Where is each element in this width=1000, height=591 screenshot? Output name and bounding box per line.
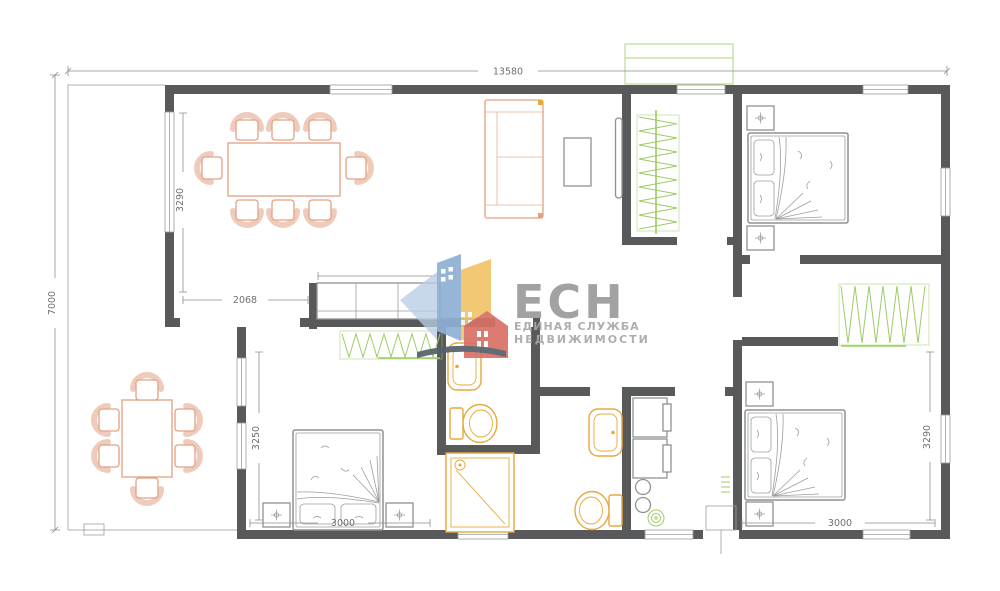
terrace-chair xyxy=(94,406,119,434)
entry-door xyxy=(706,506,736,554)
window xyxy=(941,415,950,463)
terrace-table xyxy=(122,400,172,477)
dining-chair xyxy=(233,115,261,140)
dim-bedroom-left-width: 3000 xyxy=(331,518,355,529)
terrace-set xyxy=(94,375,200,503)
bathroom-right xyxy=(575,409,622,530)
dim-dining-opening: 2068 xyxy=(233,295,257,306)
nightstand xyxy=(746,382,773,406)
bedroom-top-right xyxy=(747,106,848,250)
floor-plan-page: 13580 7000 3290 2068 3250 3000 3290 3000 xyxy=(0,0,1000,591)
window xyxy=(645,530,693,539)
toilet-icon xyxy=(575,492,622,530)
living-room-furniture xyxy=(485,100,622,218)
window xyxy=(677,85,725,94)
bedroom-bottom-left xyxy=(263,430,413,530)
coffee-table xyxy=(564,138,591,186)
basin xyxy=(636,480,651,495)
dining-chair xyxy=(233,200,261,225)
dim-total-width: 13580 xyxy=(493,67,523,78)
radiator-marks xyxy=(721,477,730,492)
shower-cabin xyxy=(446,453,514,532)
terrace-chair xyxy=(133,375,161,400)
roof-hatch-outline xyxy=(625,44,733,84)
logo-tagline-1: ЕДИНАЯ СЛУЖБА xyxy=(514,320,640,333)
washer xyxy=(633,398,671,437)
terrace-chair xyxy=(94,442,119,470)
dryer xyxy=(633,439,671,478)
dim-bedroom-right-width: 3000 xyxy=(828,518,852,529)
dining-chair xyxy=(306,200,334,225)
floor-drain xyxy=(648,510,664,526)
toilet-icon xyxy=(450,405,497,443)
tv xyxy=(616,118,623,198)
window xyxy=(941,168,950,216)
dining-chair xyxy=(197,154,222,182)
dining-chair xyxy=(269,115,297,140)
dining-chair xyxy=(346,154,371,182)
basin xyxy=(636,498,651,513)
window xyxy=(237,423,246,469)
dining-set xyxy=(197,115,371,225)
nightstand xyxy=(747,106,774,130)
wardrobe-bedroom-right xyxy=(839,284,929,346)
sofa xyxy=(485,100,543,218)
bedroom-bottom-right xyxy=(745,382,845,526)
bed xyxy=(745,410,845,500)
sink-icon xyxy=(589,409,622,456)
nightstand xyxy=(746,502,773,526)
terrace-chair xyxy=(175,406,200,434)
dining-table xyxy=(228,143,340,196)
bed xyxy=(748,133,848,223)
terrace-chair xyxy=(133,478,161,503)
window xyxy=(237,358,246,406)
terrace-chair xyxy=(175,442,200,470)
logo-tagline-2: НЕДВИЖИМОСТИ xyxy=(514,333,650,346)
bathroom-left xyxy=(446,343,514,532)
wardrobe-closet xyxy=(637,110,679,234)
window xyxy=(863,85,908,94)
dim-dining-depth: 3290 xyxy=(175,188,186,212)
nightstand xyxy=(747,226,774,250)
dining-chair xyxy=(306,115,334,140)
laundry-room xyxy=(633,398,730,526)
window xyxy=(863,530,910,539)
dim-bedroom-right-depth: 3290 xyxy=(922,425,933,449)
dining-chair xyxy=(269,200,297,225)
bed xyxy=(293,430,383,530)
dim-bedroom-left-depth: 3250 xyxy=(251,426,262,450)
window xyxy=(330,85,392,94)
window xyxy=(165,112,174,232)
floor-plan: 13580 7000 3290 2068 3250 3000 3290 3000 xyxy=(0,0,1000,591)
dim-total-height: 7000 xyxy=(47,291,58,315)
